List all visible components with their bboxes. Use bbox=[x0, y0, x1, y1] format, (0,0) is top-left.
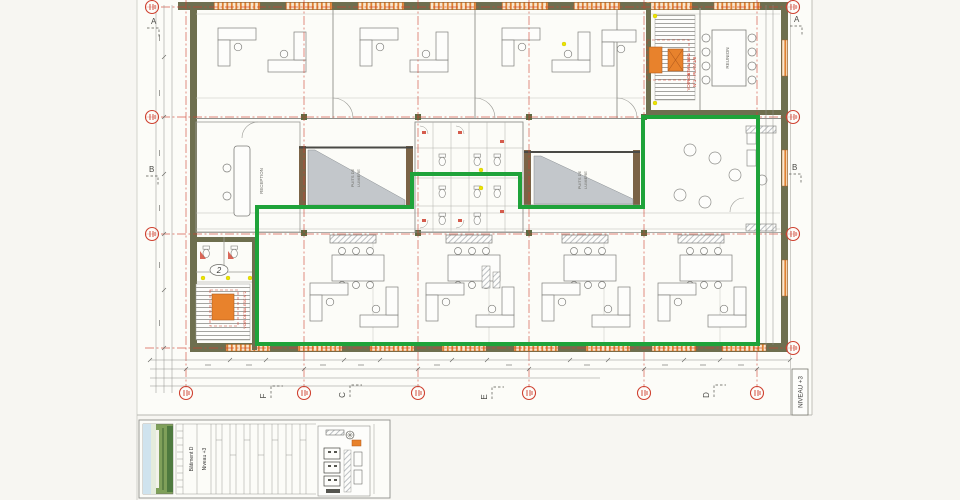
elevator-highlight-1 bbox=[649, 47, 662, 73]
floor-plan-drawing: VOIR DETAIL ESC N°1 - PLAN 1/8 REUNION R… bbox=[0, 0, 960, 500]
stair-landing-highlight bbox=[212, 294, 234, 320]
section-letter-a-right: A bbox=[794, 15, 800, 24]
stair-detail-note-line2: N°1 - PLAN 1/8 bbox=[692, 56, 697, 87]
light-well-right-label1: PUITS DE bbox=[577, 170, 582, 189]
level-label: NIVEAU +3 bbox=[798, 376, 805, 408]
siteplan-highlighted-building bbox=[352, 440, 361, 446]
section-letter-b-right: B bbox=[792, 163, 797, 172]
scanned-floor-plan-page: VOIR DETAIL ESC N°1 - PLAN 1/8 REUNION R… bbox=[0, 0, 960, 500]
title-block-siteplan bbox=[318, 426, 370, 496]
title-field-level: Niveau +3 bbox=[202, 447, 208, 470]
level-label-box: NIVEAU +3 bbox=[792, 369, 808, 415]
section-letter-e: E bbox=[480, 394, 489, 399]
title-block: Bâtiment D Niveau +3 bbox=[139, 420, 390, 498]
light-well-left-label2: LUMIERE bbox=[356, 169, 361, 187]
reunion-label: REUNION bbox=[725, 47, 730, 68]
light-well-left-label1: PUITS DE bbox=[350, 168, 355, 187]
section-letter-d: D bbox=[702, 392, 711, 398]
title-field-building: Bâtiment D bbox=[189, 446, 195, 471]
title-block-photo bbox=[143, 424, 173, 494]
stair-detail-note-line1: VOIR DETAIL ESC bbox=[686, 53, 691, 90]
section-letter-c: C bbox=[338, 392, 347, 398]
elevator-number: 2 bbox=[216, 266, 222, 275]
section-letter-a-left: A bbox=[151, 17, 157, 26]
light-well-right-label2: LUMIERE bbox=[583, 171, 588, 189]
reception-label: RECEPTION bbox=[259, 168, 264, 194]
section-letter-f: F bbox=[259, 393, 268, 398]
stair-detail-note-left: VOIR DETAIL ESC N°2 bbox=[243, 291, 247, 328]
section-letter-b-left: B bbox=[149, 165, 154, 174]
